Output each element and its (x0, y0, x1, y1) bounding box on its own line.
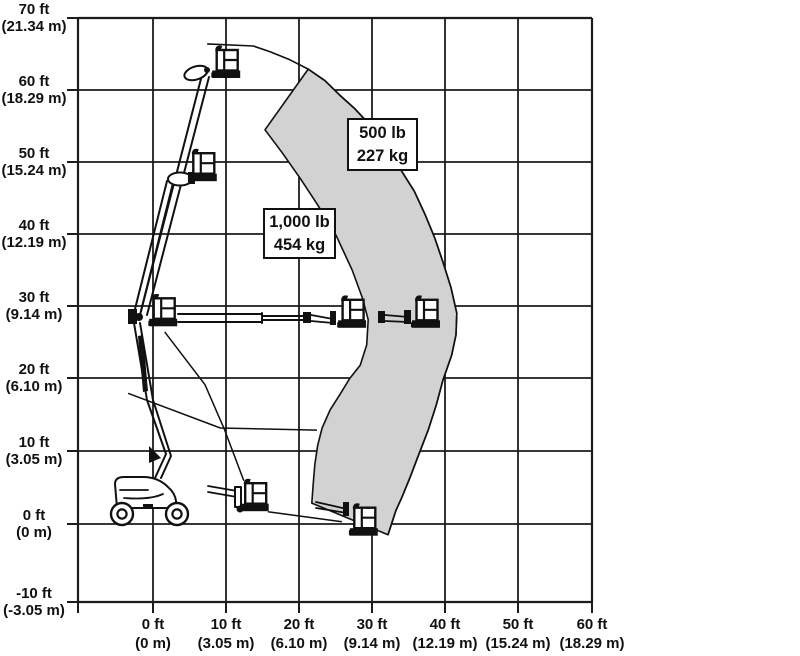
capacity-500-kg-line: 227 kg (357, 145, 408, 168)
chart-canvas (0, 0, 800, 656)
capacity-500-lb-line: 500 lb (359, 122, 406, 145)
platform-basket-icon (349, 503, 378, 535)
x-axis-label: 40 ft(12.19 m) (407, 615, 483, 653)
y-axis-label: 40 ft(12.19 m) (0, 217, 68, 251)
y-axis-label: 50 ft(15.24 m) (0, 145, 68, 179)
y-axis-label: 10 ft(3.05 m) (0, 434, 68, 468)
chassis (111, 477, 188, 525)
y-axis-label: 20 ft(6.10 m) (0, 361, 68, 395)
capacity-1000-kg-line: 454 kg (274, 234, 325, 257)
platform-basket-icon (411, 295, 440, 327)
platform-path-curve (268, 512, 342, 522)
platform-basket-icon (148, 294, 177, 326)
range-of-motion-chart: 500 lb 227 kg 1,000 lb 454 kg 70 ft(21.3… (0, 0, 800, 656)
y-axis-label: 60 ft(18.29 m) (0, 73, 68, 107)
boom-raised (141, 63, 210, 315)
y-axis-label: 30 ft(9.14 m) (0, 289, 68, 323)
capacity-label-500lb: 500 lb 227 kg (347, 118, 418, 171)
y-axis-label: 70 ft(21.34 m) (0, 1, 68, 35)
x-axis-label: 10 ft(3.05 m) (188, 615, 264, 653)
x-axis-label: 50 ft(15.24 m) (480, 615, 556, 653)
platform-basket-icon (188, 149, 217, 181)
platform-basket-icon (211, 46, 240, 78)
x-axis-label: 30 ft(9.14 m) (334, 615, 410, 653)
platform-basket-icon (240, 479, 269, 511)
platform-path-curve (165, 332, 244, 481)
y-axis-label: -10 ft(-3.05 m) (0, 585, 68, 619)
capacity-label-1000lb: 1,000 lb 454 kg (263, 208, 336, 259)
x-axis-label: 20 ft(6.10 m) (261, 615, 337, 653)
x-axis-label: 60 ft(18.29 m) (554, 615, 630, 653)
x-axis-label: 0 ft(0 m) (115, 615, 191, 653)
capacity-1000-lb-line: 1,000 lb (269, 211, 330, 234)
y-axis-label: 0 ft(0 m) (0, 507, 68, 541)
platform-basket-icon (337, 295, 366, 327)
boom-mid (133, 172, 195, 319)
boom-horizontal (178, 311, 336, 325)
